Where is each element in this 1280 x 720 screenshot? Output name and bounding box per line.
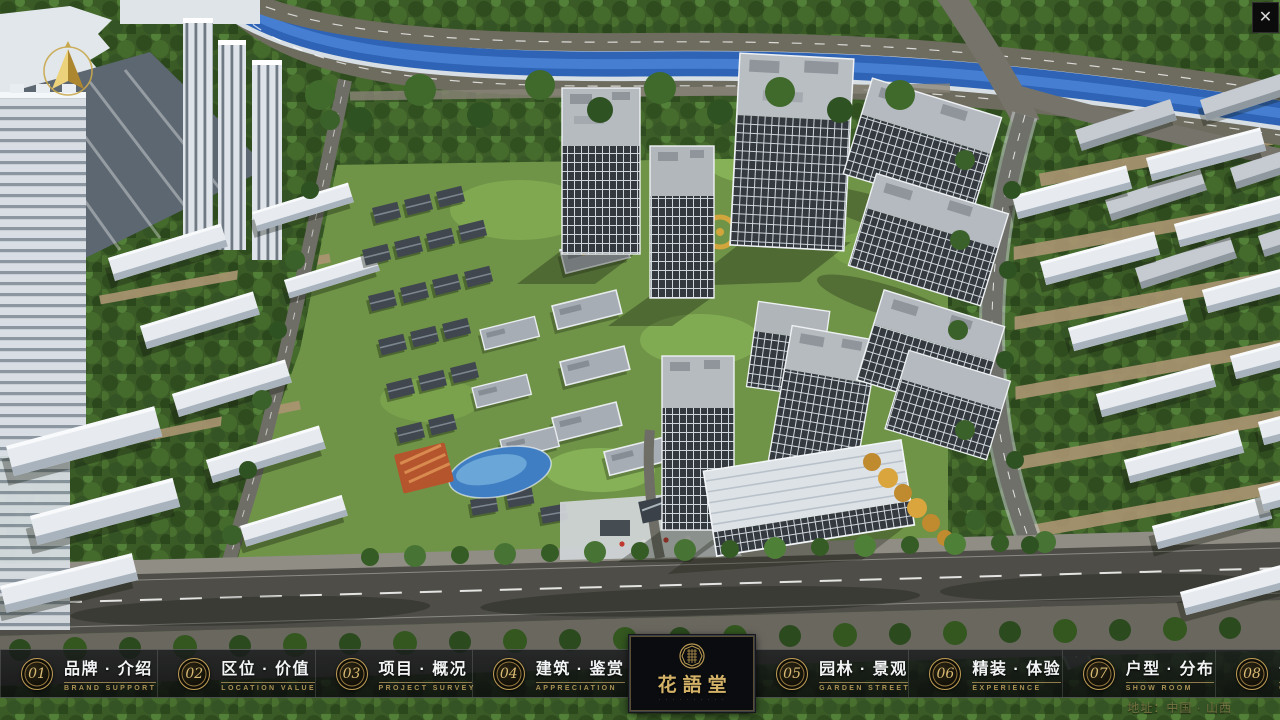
nav-caption-floorplans: SHOW ROOM bbox=[1126, 685, 1215, 692]
nav-badge-03: 03 bbox=[336, 658, 368, 690]
nav-label-interior: 精装 · 体验 bbox=[972, 655, 1061, 683]
nav-item-location[interactable]: 02 区位 · 价值 LOCATION VALUE bbox=[157, 650, 314, 697]
nav-item-interior[interactable]: 06 精装 · 体验 EXPERIENCE bbox=[908, 650, 1061, 697]
nav-caption-brand: BRAND SUPPORT bbox=[64, 685, 156, 692]
nav-badge-01: 01 bbox=[21, 658, 53, 690]
nav-caption-architecture: APPRECIATION bbox=[536, 685, 625, 692]
aerial-site-render bbox=[0, 0, 1280, 720]
nav-item-project[interactable]: 03 项目 · 概况 PROJECT SURVEY bbox=[315, 650, 472, 697]
nav-label-brand: 品牌 · 介绍 bbox=[64, 655, 156, 683]
nav-label-location: 区位 · 价值 bbox=[221, 655, 314, 683]
nav-group-right: 05 园林 · 景观 GARDEN STREET 06 精装 · 体验 EXPE… bbox=[755, 650, 1280, 697]
logo-caption: · · · · · · · · · · bbox=[659, 698, 726, 703]
nav-item-garden[interactable]: 05 园林 · 景观 GARDEN STREET bbox=[755, 650, 908, 697]
nav-badge-06: 06 bbox=[929, 658, 961, 690]
nav-caption-location: LOCATION VALUE bbox=[221, 685, 314, 692]
nav-badge-04: 04 bbox=[493, 658, 525, 690]
nav-badge-08: 08 bbox=[1236, 658, 1268, 690]
nav-group-left: 01 品牌 · 介绍 BRAND SUPPORT 02 区位 · 价值 LOCA… bbox=[0, 650, 629, 697]
nav-caption-garden: GARDEN STREET bbox=[819, 685, 908, 692]
nav-caption-project: PROJECT SURVEY bbox=[379, 685, 472, 692]
nav-label-project: 项目 · 概况 bbox=[379, 655, 472, 683]
nav-badge-07: 07 bbox=[1083, 658, 1115, 690]
nav-item-architecture[interactable]: 04 建筑 · 鉴赏 APPRECIATION bbox=[472, 650, 629, 697]
presentation-window: ✕ 01 品牌 · 介绍 BRAND SUPPORT 02 区位 · 价值 LO… bbox=[0, 0, 1280, 720]
nav-item-floorplans[interactable]: 07 户型 · 分布 SHOW ROOM bbox=[1062, 650, 1215, 697]
nav-caption-interior: EXPERIENCE bbox=[972, 685, 1061, 692]
address-text: 地址：中国 · 山西 bbox=[1127, 699, 1232, 716]
close-icon: ✕ bbox=[1259, 10, 1272, 26]
nav-label-garden: 园林 · 景观 bbox=[819, 655, 908, 683]
bottom-nav-bar: 01 品牌 · 介绍 BRAND SUPPORT 02 区位 · 价值 LOCA… bbox=[0, 649, 1280, 698]
nav-label-floorplans: 户型 · 分布 bbox=[1126, 655, 1215, 683]
nav-item-views[interactable]: 08 一房 · 一景 COMMUNITY bbox=[1215, 650, 1280, 697]
logo-seal-icon bbox=[679, 643, 705, 669]
logo-panel[interactable]: 花語堂 · · · · · · · · · · bbox=[629, 635, 755, 712]
logo-title: 花語堂 bbox=[652, 670, 733, 697]
close-button[interactable]: ✕ bbox=[1252, 2, 1279, 33]
nav-badge-02: 02 bbox=[178, 658, 210, 690]
nav-item-brand[interactable]: 01 品牌 · 介绍 BRAND SUPPORT bbox=[0, 650, 157, 697]
nav-label-architecture: 建筑 · 鉴赏 bbox=[536, 655, 625, 683]
nav-badge-05: 05 bbox=[776, 658, 808, 690]
